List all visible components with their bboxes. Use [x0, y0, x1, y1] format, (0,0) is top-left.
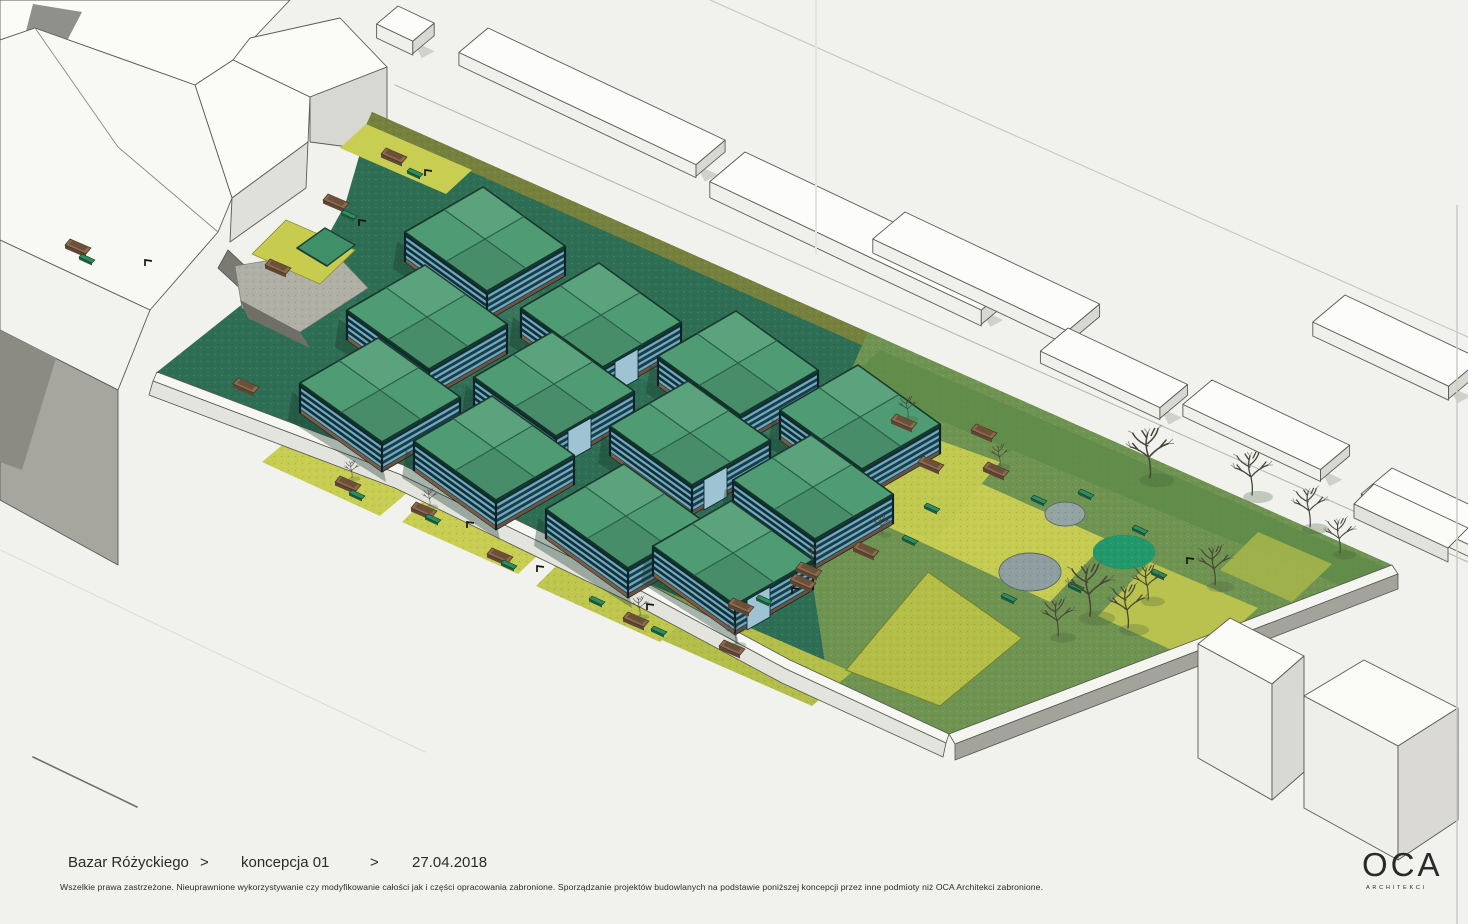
oca-logo: OCA — [1362, 846, 1443, 884]
separator: > — [370, 854, 379, 871]
date-label: 27.04.2018 — [412, 854, 487, 871]
axonometric-site-drawing — [0, 0, 1468, 924]
copyright-disclaimer: Wszelkie prawa zastrzeżone. Nieuprawnion… — [60, 882, 1043, 892]
oca-logo-subtitle: ARCHITEKCI — [1366, 885, 1427, 891]
separator: > — [200, 854, 209, 871]
scanned-drawing-sheet: { "title_block": { "project": "Bazar Róż… — [0, 0, 1468, 924]
concept-label: koncepcja 01 — [241, 854, 329, 871]
planting-circle — [1093, 535, 1155, 569]
project-title: Bazar Różyckiego — [68, 854, 189, 871]
